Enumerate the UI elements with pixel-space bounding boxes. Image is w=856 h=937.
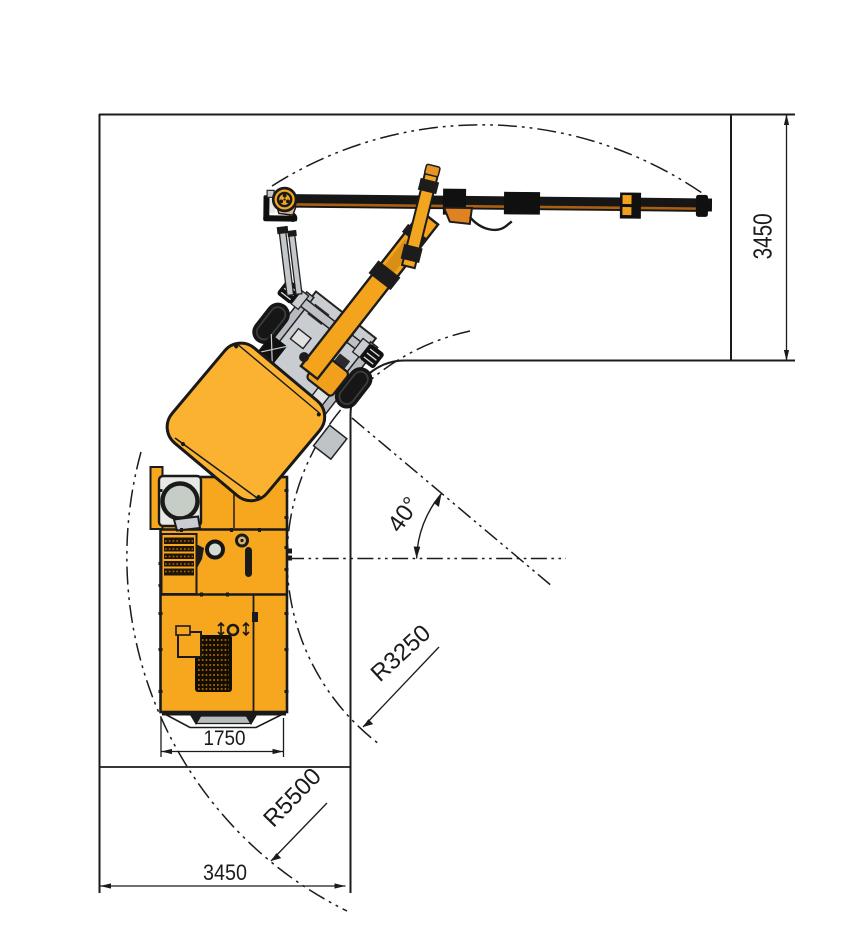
svg-text:3450: 3450 xyxy=(748,213,778,259)
svg-text:1750: 1750 xyxy=(204,726,246,750)
svg-text:3450: 3450 xyxy=(203,860,247,885)
